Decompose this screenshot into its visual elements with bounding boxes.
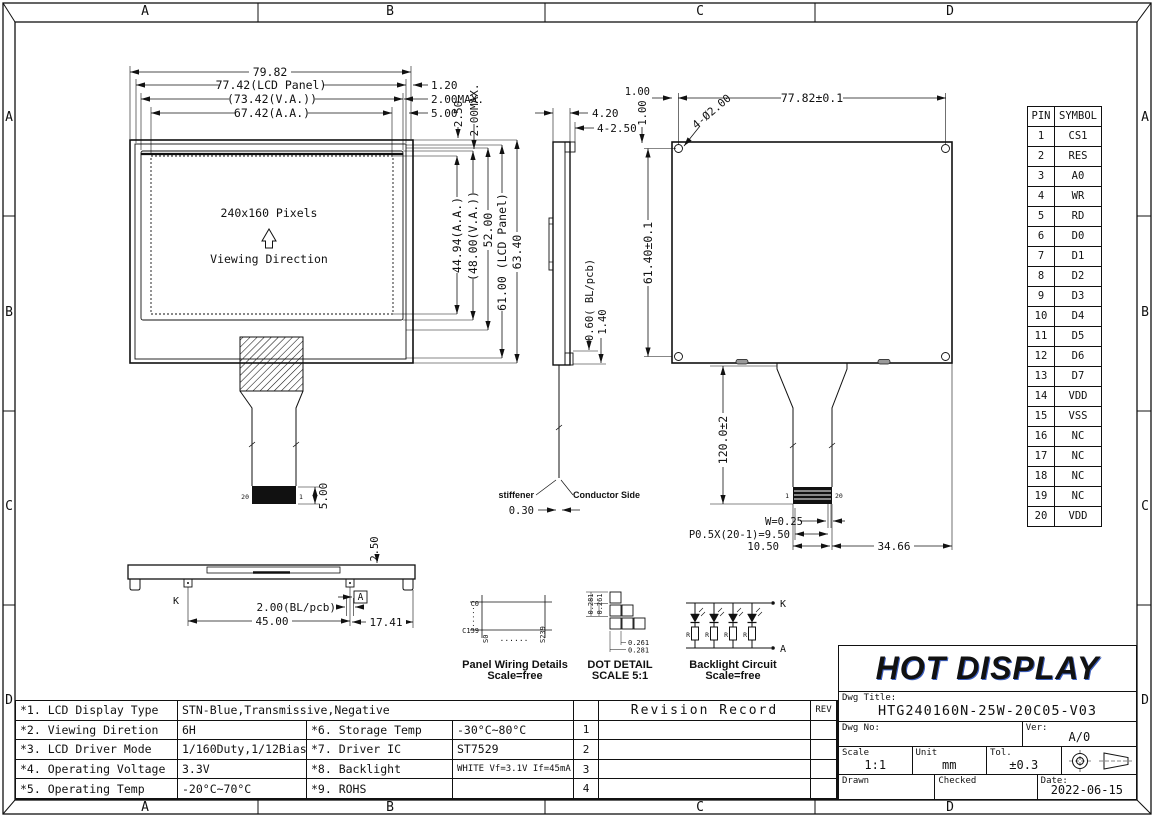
dim-side-4-250: 4-2.50 <box>597 122 637 135</box>
revision-record-title: Revision Record <box>599 701 811 721</box>
spec-value: 1/160Duty,1/12Bias <box>178 740 307 760</box>
spec-label: *1. LCD Display Type <box>16 701 178 721</box>
spec-label: *7. Driver IC <box>307 740 453 760</box>
spec-label: *2. Viewing Diretion <box>16 721 178 741</box>
dim-bottom-bl: 2.00(BL/pcb) <box>257 601 336 614</box>
table-row: 17NC <box>1028 447 1102 467</box>
backlight-r3-label: R <box>724 631 728 639</box>
table-row: 8D2 <box>1028 267 1102 287</box>
tol-value: ±0.3 <box>987 758 1061 772</box>
revision-row-number: 2 <box>574 740 599 760</box>
dim-back-width: 77.82±0.1 <box>781 91 843 105</box>
backlight-k-label: K <box>780 599 786 610</box>
spec-label: *9. ROHS <box>307 779 453 799</box>
backlight-a-label: A <box>780 644 786 655</box>
scale-value: 1:1 <box>839 758 912 772</box>
table-row: 1CS1 <box>1028 127 1102 147</box>
table-row: 16NC <box>1028 427 1102 447</box>
table-row: 5RD <box>1028 207 1102 227</box>
table-row: 14VDD <box>1028 387 1102 407</box>
front-pixels-label: 240x160 Pixels <box>221 206 318 220</box>
dim-front-gap-120: 1.20 <box>431 79 458 92</box>
backlight-circuit: R R R R K A Backlight Circuit Scale=free <box>686 599 786 682</box>
dim-front-gap-200max-b: 2.00MAX. <box>468 84 481 137</box>
backlight-scale: Scale=free <box>705 670 760 682</box>
spec-value: ST7529 <box>453 740 574 760</box>
spec-value: WHITE Vf=3.1V If=45mA <box>453 760 574 780</box>
spec-value: 6H <box>178 721 307 741</box>
date-value: 2022-06-15 <box>1038 783 1136 797</box>
revision-num-header <box>574 701 599 721</box>
revision-row-entry <box>599 779 811 799</box>
zone-top-b: B <box>380 5 400 19</box>
dim-bottom-1741: 17.41 <box>369 616 402 629</box>
revision-rev-header: REV <box>811 701 837 721</box>
dim-front-height-va: (48.00(V.A.)) <box>466 191 480 281</box>
wiring-s239-label: S239 <box>539 626 547 643</box>
dim-front-height-aa: 44.94(A.A.) <box>450 197 464 273</box>
table-row: 11D5 <box>1028 327 1102 347</box>
dim-back-3466: 34.66 <box>877 540 910 553</box>
revision-row-rev <box>811 740 837 760</box>
backlight-r4-label: R <box>743 631 747 639</box>
projection-symbol-icon <box>1066 749 1132 773</box>
dot-dim-0261-left: 0.261 <box>596 593 604 614</box>
dim-side-140: 1.40 <box>597 309 609 334</box>
side-view: 4.20 4-2.50 0.60( BL/pcb) 1.40 stiffener… <box>498 107 640 517</box>
dim-back-pin-width: W=0.25 <box>765 516 803 528</box>
spec-value: STN-Blue,Transmissive,Negative <box>178 701 574 721</box>
spec-value <box>453 779 574 799</box>
dim-back-offset-v: 1.00 <box>637 100 649 125</box>
zone-right-b: B <box>1139 306 1151 320</box>
revision-row-number: 1 <box>574 721 599 741</box>
front-dimension-lines <box>130 72 517 504</box>
zone-bottom-b: B <box>380 801 400 815</box>
tol-label: Tol. <box>990 748 1012 758</box>
dwg-title-value: HTG240160N-25W-20C05-V03 <box>839 703 1136 719</box>
zone-left-d: D <box>3 694 15 708</box>
wiring-vertical-dots: ...... <box>468 606 476 631</box>
dim-front-gap-250: 2.50 <box>452 101 465 128</box>
dim-front-connector-500: 5.00 <box>317 483 330 510</box>
side-conductor-label: Conductor Side <box>573 490 640 500</box>
pin-table: PINSYMBOL 1CS1 2RES 3A0 4WR 5RD 6D0 7D1 … <box>1027 106 1102 527</box>
revision-row-number: 4 <box>574 779 599 799</box>
spec-and-revision-table: *1. LCD Display Type STN-Blue,Transmissi… <box>15 700 838 800</box>
dim-front-height-panel: 61.00 (LCD Panel) <box>495 193 509 311</box>
dim-back-conn-width: 10.50 <box>747 541 779 553</box>
scale-label: Scale <box>842 748 869 758</box>
zone-left-b: B <box>3 306 15 320</box>
revision-row-number: 3 <box>574 760 599 780</box>
pin-table-header: PINSYMBOL <box>1028 107 1102 127</box>
table-row: 20VDD <box>1028 507 1102 527</box>
zone-bottom-d: D <box>940 801 960 815</box>
table-row: 9D3 <box>1028 287 1102 307</box>
dot-detail: 0.281 0.261 0.261 0.281 DOT DETAIL SCALE… <box>586 592 653 682</box>
zone-top-c: C <box>690 5 710 19</box>
revision-row-entry <box>599 721 811 741</box>
revision-row-rev <box>811 721 837 741</box>
zone-top-d: D <box>940 5 960 19</box>
zone-top-a: A <box>135 5 155 19</box>
front-view: 240x160 Pixels Viewing Direction 20 1 <box>130 65 524 509</box>
dim-bottom-45: 45.00 <box>255 615 288 628</box>
spec-label: *4. Operating Voltage <box>16 760 178 780</box>
dim-back-offset-h: 1.00 <box>625 86 650 98</box>
revision-row-entry <box>599 760 811 780</box>
table-row: 12D6 <box>1028 347 1102 367</box>
zone-bottom-c: C <box>690 801 710 815</box>
wiring-horizontal-dots: ...... <box>500 634 529 643</box>
front-pin20-label: 20 <box>241 493 249 501</box>
title-block: HOT DISPLAY Dwg Title: HTG240160N-25W-20… <box>838 645 1137 800</box>
dot-dim-0281-bottom: 0.281 <box>628 647 649 655</box>
dot-dim-0281-left: 0.281 <box>587 593 595 614</box>
zone-right-c: C <box>1139 500 1151 514</box>
table-row: 19NC <box>1028 487 1102 507</box>
bottom-a-label: A <box>358 592 364 603</box>
zone-left-c: C <box>3 500 15 514</box>
backlight-r2-label: R <box>705 631 709 639</box>
spec-value: 3.3V <box>178 760 307 780</box>
dim-back-pitch: P0.5X(20-1)=9.50 <box>689 529 790 541</box>
zone-right-a: A <box>1139 111 1151 125</box>
dim-side-bl: 0.60( BL/pcb) <box>584 259 596 341</box>
wiring-s0-label: S0 <box>482 635 490 643</box>
dim-side-420: 4.20 <box>592 107 619 120</box>
spec-label: *6. Storage Temp <box>307 721 453 741</box>
drawing-sheet: 240x160 Pixels Viewing Direction 20 1 <box>0 0 1154 817</box>
back-pin1-label: 1 <box>785 492 789 500</box>
spec-label: *8. Backlight <box>307 760 453 780</box>
dot-scale: SCALE 5:1 <box>592 670 648 682</box>
dwg-no-label: Dwg No: <box>842 723 880 733</box>
back-view: 77.82±0.1 1.00 1.00 4-Ø2.00 61.40±0.1 12… <box>625 86 952 553</box>
backlight-r1-label: R <box>686 631 690 639</box>
dim-front-width-panel: 77.42(LCD Panel) <box>216 78 327 92</box>
front-pin1-label: 1 <box>299 493 303 501</box>
table-row: 15VSS <box>1028 407 1102 427</box>
drawn-label: Drawn <box>842 776 869 786</box>
front-viewing-label: Viewing Direction <box>210 252 328 266</box>
unit-value: mm <box>913 758 987 772</box>
spec-label: *3. LCD Driver Mode <box>16 740 178 760</box>
spec-value: -30°C~80°C <box>453 721 574 741</box>
unit-label: Unit <box>916 748 938 758</box>
panel-wiring-detail: C0 C159 ...... S0 S239 ...... Panel Wiri… <box>462 595 568 682</box>
table-row: 4WR <box>1028 187 1102 207</box>
table-row: 7D1 <box>1028 247 1102 267</box>
dwg-title-label: Dwg Title: <box>842 693 896 703</box>
revision-row-rev <box>811 779 837 799</box>
table-row: 2RES <box>1028 147 1102 167</box>
company-logo: HOT DISPLAY <box>839 646 1136 691</box>
dim-back-fpc-length: 120.0±2 <box>716 416 730 464</box>
dim-front-width-aa: 67.42(A.A.) <box>234 106 310 120</box>
dim-front-width-overall: 79.82 <box>253 65 288 79</box>
front-connector <box>252 486 296 504</box>
ver-value: A/0 <box>1023 730 1136 744</box>
bottom-view: 2.50 K A 2.00(BL/pcb) 45.00 17.41 <box>128 536 415 629</box>
table-row: 13D7 <box>1028 367 1102 387</box>
side-stiffener-label: stiffener <box>498 490 534 500</box>
zone-right-d: D <box>1139 694 1151 708</box>
revision-row-entry <box>599 740 811 760</box>
symbol-col-header: SYMBOL <box>1055 107 1102 127</box>
dim-front-height-52: 52.00 <box>481 213 495 248</box>
dim-front-height-overall: 63.40 <box>510 235 524 270</box>
table-row: 3A0 <box>1028 167 1102 187</box>
zone-left-a: A <box>3 111 15 125</box>
bottom-k-label: K <box>173 596 179 607</box>
back-pin20-label: 20 <box>835 492 843 500</box>
wiring-scale: Scale=free <box>487 670 542 682</box>
dim-back-height: 61.40±0.1 <box>641 222 655 284</box>
table-row: 18NC <box>1028 467 1102 487</box>
table-row: 10D4 <box>1028 307 1102 327</box>
pin-col-header: PIN <box>1028 107 1055 127</box>
spec-label: *5. Operating Temp <box>16 779 178 799</box>
dim-front-width-va: (73.42(V.A.)) <box>227 92 317 106</box>
zone-bottom-a: A <box>135 801 155 815</box>
dim-side-030: 0.30 <box>509 505 534 517</box>
revision-row-rev <box>811 760 837 780</box>
dim-bottom-250: 2.50 <box>369 536 381 561</box>
checked-label: Checked <box>938 776 976 786</box>
table-row: 6D0 <box>1028 227 1102 247</box>
spec-value: -20°C~70°C <box>178 779 307 799</box>
